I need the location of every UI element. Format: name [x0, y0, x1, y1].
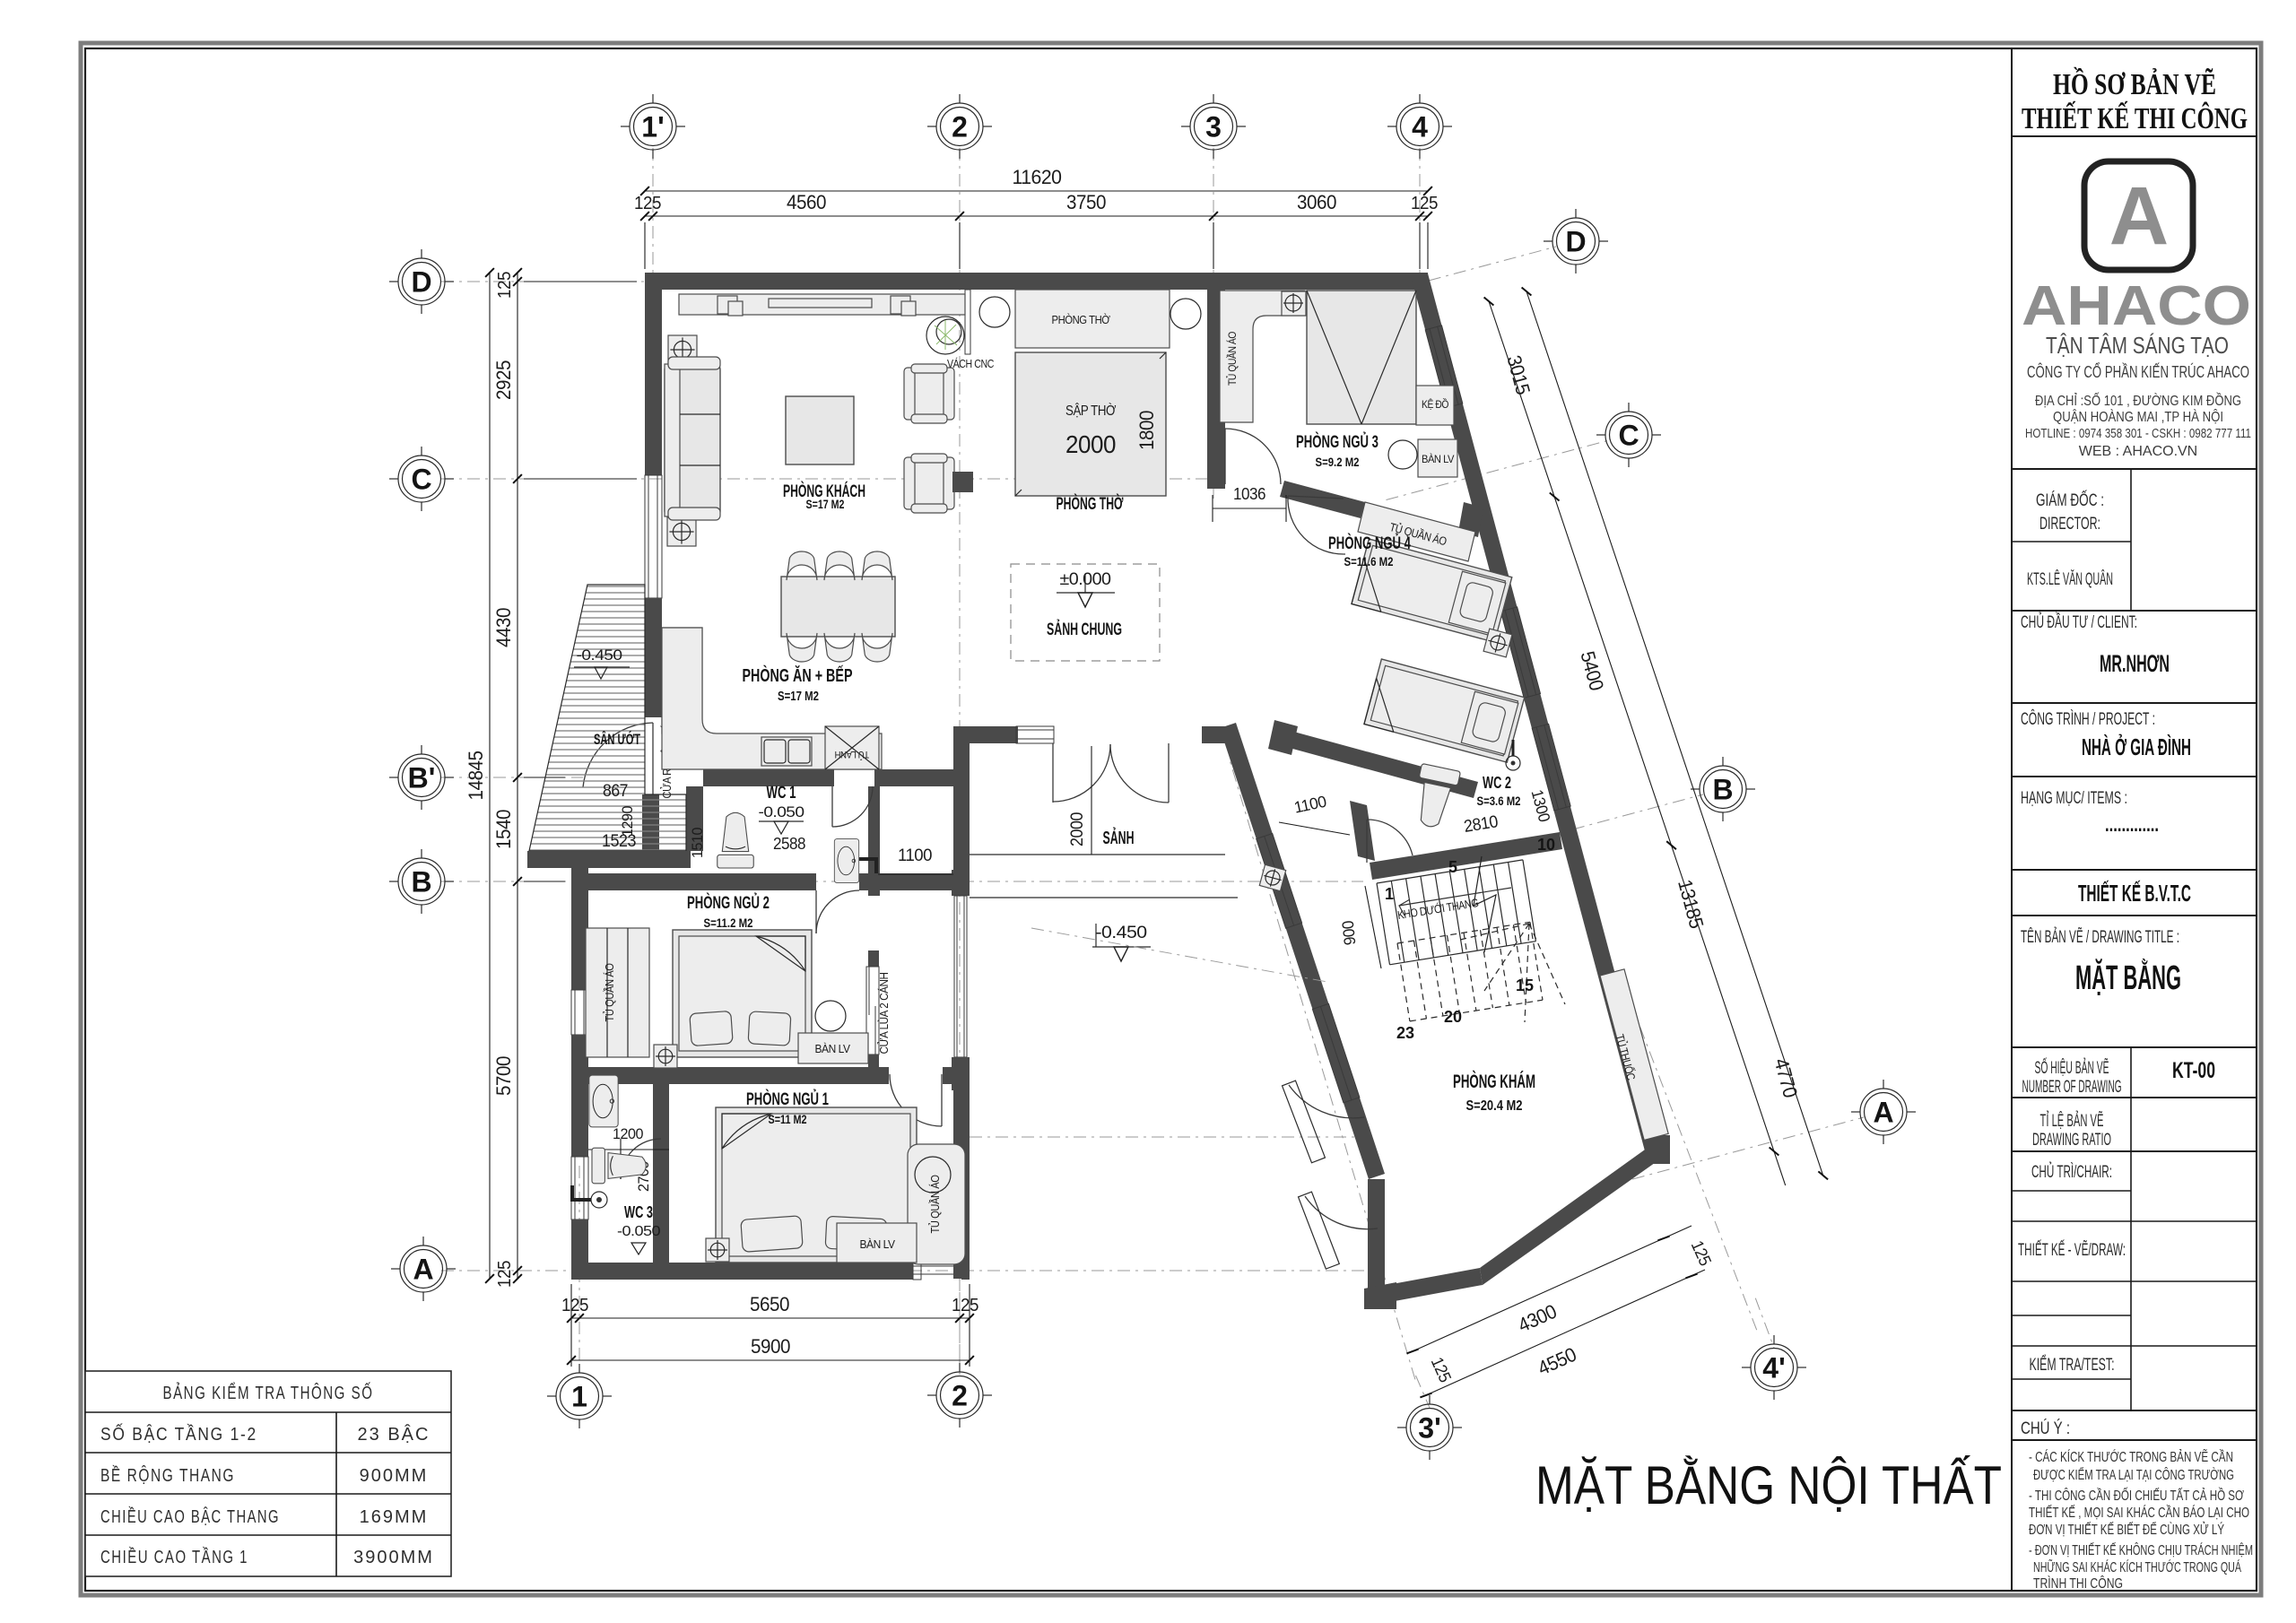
svg-text:S=20.4 M2: S=20.4 M2 — [1466, 1098, 1523, 1114]
svg-text:SẢNH: SẢNH — [1103, 828, 1135, 848]
svg-text:1: 1 — [1385, 885, 1394, 903]
svg-text:1510: 1510 — [689, 828, 706, 858]
svg-text:SỐ HIỆU BẢN VẼ: SỐ HIỆU BẢN VẼ — [2035, 1058, 2109, 1078]
svg-text:-0.050: -0.050 — [759, 803, 804, 820]
svg-text:4430: 4430 — [492, 608, 515, 647]
svg-text:SẢNH CHUNG: SẢNH CHUNG — [1047, 620, 1122, 639]
svg-text:CHÚ Ý :: CHÚ Ý : — [2021, 1419, 2070, 1438]
svg-text:HẠNG MỤC/ ITEMS :: HẠNG MỤC/ ITEMS : — [2021, 789, 2127, 808]
svg-text:BÀN LV: BÀN LV — [860, 1237, 896, 1251]
svg-text:CHIỀU CAO TẦNG 1: CHIỀU CAO TẦNG 1 — [100, 1547, 248, 1567]
svg-text:TẬN TÂM SÁNG TẠO: TẬN TÂM SÁNG TẠO — [2046, 332, 2229, 359]
svg-text:THIẾT KẾ , MỌI SAI KHÁC CẦN BÁ: THIẾT KẾ , MỌI SAI KHÁC CẦN BÁO LẠI CHO — [2029, 1506, 2249, 1521]
svg-text:THIẾT KẾ B.V.T.C: THIẾT KẾ B.V.T.C — [2078, 880, 2191, 907]
svg-text:B: B — [411, 866, 431, 898]
svg-text:NHÀ Ở GIA ĐÌNH: NHÀ Ở GIA ĐÌNH — [2082, 733, 2191, 760]
svg-text:20: 20 — [1444, 1008, 1462, 1026]
svg-text:CHỦ ĐẦU TƯ / CLIENT:: CHỦ ĐẦU TƯ / CLIENT: — [2021, 612, 2137, 632]
svg-text:867: 867 — [603, 782, 628, 801]
svg-text:PHÒNG THỜ: PHÒNG THỜ — [1052, 313, 1110, 326]
svg-text:2925: 2925 — [492, 360, 515, 400]
svg-text:3900MM: 3900MM — [353, 1548, 434, 1567]
svg-text:PHÒNG THỜ: PHÒNG THỜ — [1057, 494, 1125, 514]
svg-text:NUMBER OF DRAWING: NUMBER OF DRAWING — [2022, 1078, 2122, 1097]
svg-text:900MM: 900MM — [360, 1466, 429, 1486]
svg-text:1540: 1540 — [492, 810, 515, 849]
svg-text:ĐƯỢC KIỂM TRA LẠI TẠI CÔNG TRƯ: ĐƯỢC KIỂM TRA LẠI TẠI CÔNG TRƯỜNG — [2033, 1467, 2234, 1483]
svg-text:TỦ LẠNH: TỦ LẠNH — [835, 749, 869, 760]
svg-text:ĐƠN VỊ THIẾT KẾ BIẾT ĐỂ CÙNG X: ĐƠN VỊ THIẾT KẾ BIẾT ĐỂ CÙNG XỬ LÝ — [2029, 1522, 2224, 1538]
svg-text:S=11 M2: S=11 M2 — [769, 1112, 807, 1126]
svg-text:CHỦ TRÌ/CHAIR:: CHỦ TRÌ/CHAIR: — [2031, 1162, 2112, 1182]
svg-text:125: 125 — [952, 1296, 978, 1315]
svg-text:AHACO: AHACO — [2022, 275, 2251, 337]
svg-text:S=3.6 M2: S=3.6 M2 — [1477, 794, 1521, 808]
svg-text:WC 1: WC 1 — [767, 784, 796, 803]
svg-text:S=11.6 M2: S=11.6 M2 — [1344, 554, 1394, 568]
svg-text:PHÒNG NGỦ 1: PHÒNG NGỦ 1 — [746, 1089, 829, 1109]
svg-text:S=11.2 M2: S=11.2 M2 — [704, 916, 753, 930]
svg-text:KT-00: KT-00 — [2172, 1058, 2215, 1083]
svg-text:TÊN BẢN VẼ / DRAWING TITLE :: TÊN BẢN VẼ / DRAWING TITLE : — [2021, 927, 2179, 947]
svg-text:CÔNG TRÌNH / PROJECT :: CÔNG TRÌNH / PROJECT : — [2021, 709, 2155, 729]
svg-text:MẶT BẰNG: MẶT BẰNG — [2075, 958, 2181, 997]
svg-text:5650: 5650 — [750, 1293, 789, 1315]
svg-text:5700: 5700 — [492, 1056, 515, 1096]
svg-text:THIẾT KẾ THI CÔNG: THIẾT KẾ THI CÔNG — [2022, 100, 2248, 135]
svg-text:HOTLINE : 0974 358 301 - C: HOTLINE : 0974 358 301 - CSKH : 0982 777… — [2025, 426, 2251, 441]
svg-text:TỦ QUẦN ÁO: TỦ QUẦN ÁO — [928, 1175, 942, 1233]
svg-text:CỬA LÙA 2 CÁNH: CỬA LÙA 2 CÁNH — [877, 972, 891, 1054]
svg-text:B': B' — [408, 762, 436, 794]
svg-text:NHỮNG SAI KHÁC KÍCH THƯỚC TRON: NHỮNG SAI KHÁC KÍCH THƯỚC TRONG QUÁ — [2033, 1560, 2241, 1575]
svg-text:TỦ QUẦN ÁO: TỦ QUẦN ÁO — [1225, 332, 1239, 386]
svg-text:2588: 2588 — [773, 835, 805, 853]
svg-text:PHÒNG KHÁM: PHÒNG KHÁM — [1453, 1071, 1535, 1092]
svg-text:PHÒNG NGỦ 2: PHÒNG NGỦ 2 — [687, 893, 770, 913]
svg-text:D: D — [1565, 226, 1586, 258]
svg-text:125: 125 — [1411, 194, 1438, 213]
svg-text:125: 125 — [495, 272, 515, 299]
svg-text:1036: 1036 — [1233, 485, 1265, 503]
svg-text:1100: 1100 — [898, 846, 932, 865]
svg-text:BÀN LV: BÀN LV — [815, 1042, 851, 1055]
svg-text:.............: ............. — [2105, 813, 2159, 836]
svg-text:5: 5 — [1448, 858, 1457, 876]
svg-text:900: 900 — [1339, 920, 1360, 946]
svg-text:3750: 3750 — [1066, 191, 1106, 213]
svg-text:1523: 1523 — [602, 832, 636, 851]
svg-text:SỐ BẬC TẦNG 1-2: SỐ BẬC TẦNG 1-2 — [100, 1423, 257, 1445]
svg-text:2000: 2000 — [1068, 812, 1087, 846]
svg-text:C: C — [1618, 420, 1639, 452]
svg-text:11620: 11620 — [1013, 166, 1062, 188]
svg-text:-0.050: -0.050 — [617, 1224, 661, 1239]
svg-text:S=9.2 M2: S=9.2 M2 — [1316, 455, 1360, 469]
svg-text:WEB : AHACO.VN: WEB : AHACO.VN — [2079, 444, 2197, 459]
svg-text:TỈ LỆ BẢN VẼ: TỈ LỆ BẢN VẼ — [2040, 1111, 2104, 1131]
svg-text:2: 2 — [952, 1380, 968, 1412]
svg-text:A: A — [413, 1254, 433, 1286]
svg-text:S=17 M2: S=17 M2 — [806, 497, 845, 511]
svg-text:KỆ ĐỒ: KỆ ĐỒ — [1422, 397, 1448, 411]
svg-text:A: A — [2109, 170, 2169, 262]
svg-text:DRAWING RATIO: DRAWING RATIO — [2032, 1131, 2111, 1150]
svg-text:10: 10 — [1537, 836, 1555, 854]
svg-text:PHÒNG ĂN + BẾP: PHÒNG ĂN + BẾP — [743, 664, 853, 686]
svg-text:MẶT BẰNG NỘI THẤT: MẶT BẰNG NỘI THẤT — [1535, 1455, 2002, 1515]
svg-text:2: 2 — [952, 111, 968, 143]
svg-text:1: 1 — [571, 1381, 587, 1413]
svg-text:MR.NHƠN: MR.NHƠN — [2100, 650, 2170, 677]
svg-text:GIÁM ĐỐC :: GIÁM ĐỐC : — [2036, 490, 2104, 510]
svg-text:A: A — [1873, 1097, 1893, 1129]
svg-text:15: 15 — [1516, 976, 1534, 994]
svg-text:5900: 5900 — [751, 1335, 790, 1358]
svg-text:THIẾT KẾ - VẼ/DRAW:: THIẾT KẾ - VẼ/DRAW: — [2018, 1240, 2126, 1260]
svg-text:BỀ RỘNG THANG: BỀ RỘNG THANG — [100, 1465, 235, 1486]
svg-text:23 BẬC: 23 BẬC — [358, 1424, 430, 1445]
svg-text:4: 4 — [1412, 111, 1428, 143]
svg-text:PHÒNG NGỦ 3: PHÒNG NGỦ 3 — [1296, 432, 1378, 452]
svg-text:125: 125 — [495, 1261, 515, 1288]
svg-text:-0.450: -0.450 — [577, 647, 622, 664]
svg-text:WC 2: WC 2 — [1483, 774, 1511, 792]
svg-text:C: C — [411, 464, 431, 496]
svg-text:S=17 M2: S=17 M2 — [778, 689, 819, 704]
svg-text:125: 125 — [634, 194, 661, 213]
svg-text:ĐỊA CHỈ :SỐ 101 , ĐƯỜNG KIM ĐỒ: ĐỊA CHỈ :SỐ 101 , ĐƯỜNG KIM ĐỒNG — [2035, 391, 2241, 409]
svg-text:3060: 3060 — [1297, 191, 1336, 213]
svg-text:3': 3' — [1418, 1412, 1440, 1445]
svg-text:- ĐƠN VỊ THIẾT KẾ KHÔNG CHỊU T: - ĐƠN VỊ THIẾT KẾ KHÔNG CHỊU TRÁCH NHIỆM — [2029, 1543, 2253, 1558]
svg-text:-0.450: -0.450 — [1096, 924, 1147, 942]
svg-text:1': 1' — [641, 111, 664, 143]
svg-text:D: D — [411, 266, 431, 299]
svg-text:BẢNG KIỂM TRA THÔNG SỐ: BẢNG KIỂM TRA THÔNG SỐ — [163, 1382, 374, 1403]
svg-text:WC 3: WC 3 — [624, 1203, 653, 1221]
svg-text:TRÌNH THI CÔNG: TRÌNH THI CÔNG — [2033, 1576, 2123, 1592]
svg-text:2000: 2000 — [1065, 430, 1116, 458]
svg-text:4': 4' — [1762, 1352, 1785, 1384]
svg-text:125: 125 — [561, 1296, 588, 1315]
svg-text:14845: 14845 — [465, 751, 487, 800]
svg-text:- THI CÔNG CẦN ĐỐI CHIẾU TẤT C: - THI CÔNG CẦN ĐỐI CHIẾU TẤT CẢ HỒ SƠ — [2029, 1488, 2244, 1504]
svg-text:B: B — [1712, 774, 1733, 806]
svg-text:PHÒNG NGỦ 4: PHÒNG NGỦ 4 — [1328, 534, 1411, 553]
svg-text:SÂN ƯỚT: SÂN ƯỚT — [594, 731, 640, 748]
svg-text:169MM: 169MM — [360, 1507, 429, 1527]
svg-text:SẬP THỜ: SẬP THỜ — [1065, 402, 1117, 419]
svg-text:KIỂM TRA/TEST:: KIỂM TRA/TEST: — [2030, 1355, 2115, 1375]
svg-text:QUẬN HOÀNG MAI ,TP HÀ NỘI: QUẬN HOÀNG MAI ,TP HÀ NỘI — [2053, 408, 2223, 425]
svg-text:HỒ SƠ BẢN VẼ: HỒ SƠ BẢN VẼ — [2053, 66, 2216, 101]
svg-text:CÔNG TY CỔ PHẦN KIẾN TRÚC AHAC: CÔNG TY CỔ PHẦN KIẾN TRÚC AHACO — [2027, 362, 2249, 381]
svg-text:3: 3 — [1205, 111, 1222, 143]
svg-text:1800: 1800 — [1135, 411, 1158, 450]
svg-text:KTS.LÊ VĂN QUÂN: KTS.LÊ VĂN QUÂN — [2027, 569, 2113, 589]
svg-text:DIRECTOR:: DIRECTOR: — [2039, 515, 2100, 534]
svg-text:4560: 4560 — [787, 191, 826, 213]
svg-text:TỦ QUẦN ÁO: TỦ QUẦN ÁO — [603, 963, 616, 1021]
svg-text:VÁCH CNC: VÁCH CNC — [947, 357, 994, 370]
svg-text:BÀN LV: BÀN LV — [1422, 452, 1454, 465]
svg-text:1200: 1200 — [613, 1125, 643, 1142]
svg-text:CHIỀU CAO BẬC THANG: CHIỀU CAO BẬC THANG — [100, 1506, 280, 1527]
svg-text:23: 23 — [1396, 1024, 1414, 1042]
svg-text:- CÁC KÍCK THƯỚC TRONG BẢN VẼ: - CÁC KÍCK THƯỚC TRONG BẢN VẼ CẦN — [2029, 1450, 2233, 1465]
